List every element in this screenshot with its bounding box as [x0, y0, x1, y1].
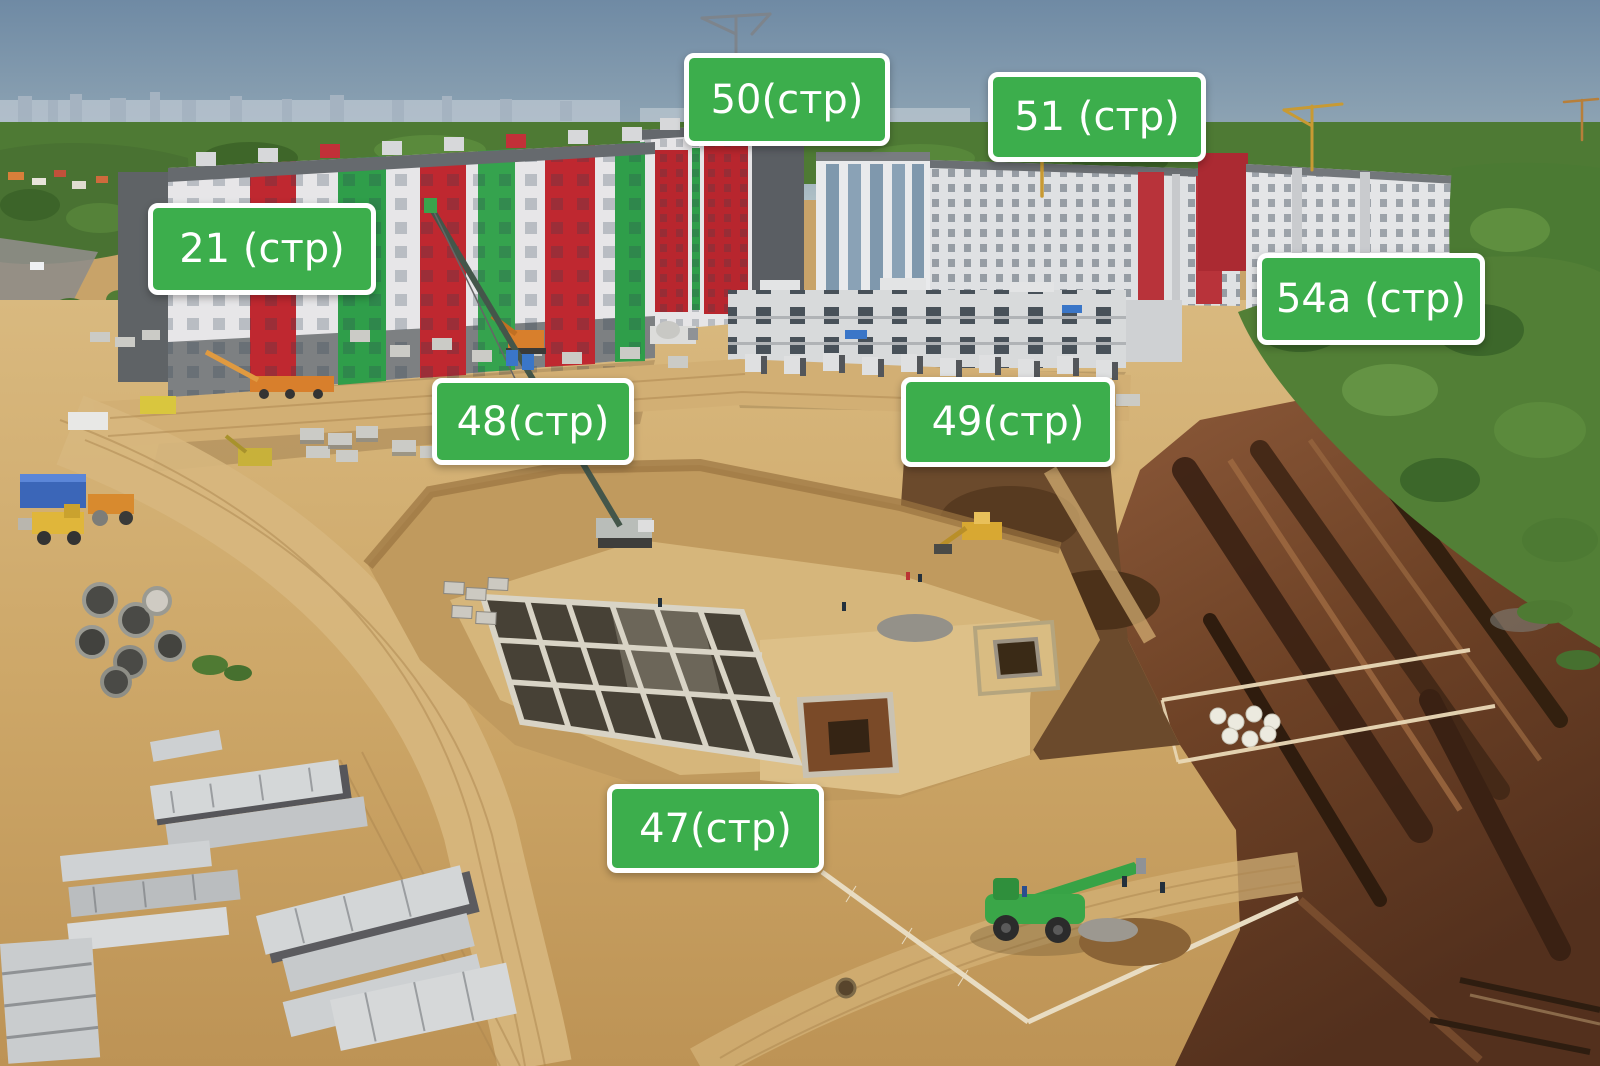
building-label-51[interactable]: 51 (стр): [988, 72, 1206, 162]
second-square-pit: [975, 622, 1058, 694]
crane-hook-block: [424, 198, 437, 213]
porta-potty-2: [522, 354, 534, 370]
photo-background: [0, 0, 1600, 1066]
manhole: [837, 979, 855, 997]
building-label-47[interactable]: 47(стр): [607, 784, 824, 873]
white-cabin: [68, 412, 108, 430]
yellow-cabin: [140, 396, 176, 414]
blue-container: [20, 478, 86, 508]
building-label-54a[interactable]: 54а (стр): [1257, 253, 1485, 345]
building-label-50[interactable]: 50(стр): [684, 53, 890, 146]
construction-site-photo: 50(стр) 51 (стр) 21 (стр) 54а (стр) 48(с…: [0, 0, 1600, 1066]
building-label-49[interactable]: 49(стр): [901, 377, 1115, 467]
gravel-pile: [877, 614, 953, 642]
building-label-21[interactable]: 21 (стр): [148, 203, 376, 295]
square-foundation: [800, 695, 896, 775]
porta-potty: [506, 350, 518, 366]
building-row-mid: [930, 160, 1240, 306]
building-label-48[interactable]: 48(стр): [432, 378, 634, 465]
